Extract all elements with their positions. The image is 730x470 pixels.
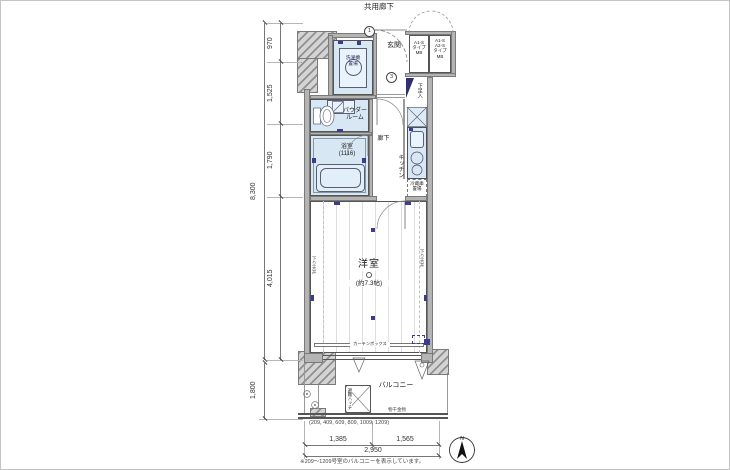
bathtub-inner-icon <box>320 168 361 188</box>
fixture-mark <box>409 128 413 131</box>
wall-segment <box>427 77 433 363</box>
ceiling-light-icon <box>366 272 372 278</box>
toilet-icon <box>313 102 335 130</box>
room-numbers-note: (209, 409, 609, 809, 1009, 1209) <box>309 420 433 426</box>
fixture-mark <box>362 158 366 163</box>
north-label: N <box>457 437 467 443</box>
entrance-step-line <box>377 94 405 95</box>
label-fridge: 冷蔵庫 置場 <box>407 181 427 191</box>
faucet-icon <box>303 390 311 398</box>
hatched-structure <box>297 58 318 93</box>
dim-label-1800: 1,800 <box>250 373 257 407</box>
dim-label-1385: 1,385 <box>321 436 355 443</box>
label-curtain-box: カーテンボックス <box>350 342 390 347</box>
label-mb-right: A1-S A2-S タイプ MB <box>429 38 451 59</box>
wall-segment <box>304 353 323 363</box>
plan-marker-3: 3 <box>386 72 397 83</box>
fixture-mark <box>424 339 430 345</box>
dimension-line <box>264 363 265 419</box>
shoe-box-icon <box>406 78 414 98</box>
drain-icon <box>311 401 319 409</box>
fixture-mark <box>337 129 343 132</box>
fixture-mark <box>312 158 316 163</box>
fixture-mark <box>338 41 343 44</box>
plan-marker-1: 1 <box>364 26 375 37</box>
extension-line <box>439 421 440 459</box>
balcony-rail-line <box>298 417 448 419</box>
fixture-mark <box>311 295 314 301</box>
dim-label-970: 970 <box>267 30 274 56</box>
label-balcony: バルコニー <box>373 382 419 390</box>
label-powder-room: パウダー ルーム <box>339 108 371 122</box>
dimension-line <box>305 456 440 457</box>
room-door-arc-icon <box>377 201 405 229</box>
dim-label-1525: 1,525 <box>267 77 274 109</box>
label-hallway: 廊下 <box>375 136 392 143</box>
fixture-mark <box>405 202 411 205</box>
fixture-mark <box>424 295 427 301</box>
label-common-corridor: 共用廊下 <box>347 3 411 12</box>
fixture-mark <box>371 228 375 232</box>
kitchen-sink-icon <box>410 131 424 148</box>
extension-line <box>267 197 303 198</box>
label-kitchen: キッチン <box>396 144 403 188</box>
stove-burners-icon <box>409 151 425 177</box>
label-mb-left: A1-S タイプ MB <box>409 40 429 56</box>
dim-label-4015: 4,015 <box>267 261 274 295</box>
wall-segment <box>369 135 373 199</box>
label-laundry-hardware: 物干金物 <box>380 407 414 412</box>
partition-line <box>403 99 405 179</box>
dimension-line <box>264 23 265 360</box>
fixture-mark <box>334 202 340 205</box>
balcony-edge-line <box>447 375 448 415</box>
dim-label-1790: 1,790 <box>267 144 274 176</box>
range-hood-icon <box>407 107 427 127</box>
balcony-edge-line <box>304 363 305 415</box>
label-lowered-ceiling-left: 下り天井 <box>312 248 317 282</box>
extension-line <box>267 23 303 24</box>
dimension-line <box>280 23 281 360</box>
mb-door-arc-icon <box>407 5 455 34</box>
fixture-mark <box>371 316 375 320</box>
label-lowered-ceiling-right: 下り天井 <box>420 241 425 275</box>
label-shoe-box: 下足入 <box>416 78 422 102</box>
window-line <box>323 359 421 360</box>
hall-door-arc-icon <box>377 99 403 125</box>
footer-note: ※209〜1209号室のバルコニーを表示しています。 <box>300 459 470 465</box>
dim-label-1565: 1,565 <box>388 436 422 443</box>
dim-label-2950: 2,950 <box>358 447 388 454</box>
entrance-door-arc-icon <box>375 29 408 62</box>
label-main-room-size: (約7.3帖) <box>343 280 395 287</box>
dim-label-8300: 8,300 <box>250 173 257 209</box>
label-escape-hatch: 避難ハッチ <box>347 386 352 412</box>
bath-door-arc-icon <box>347 135 368 156</box>
lowered-ceiling-line <box>323 201 324 353</box>
floor-plan-canvas: 共用廊下 A1-S タイプ MB A1-S A2-S タイプ MB 玄関 1 <box>0 0 730 470</box>
laundry-pole-icon <box>415 361 429 379</box>
entrance-step-line <box>377 97 405 98</box>
laundry-pole-icon <box>353 358 365 372</box>
wall-segment <box>451 31 456 77</box>
balcony-rail-line <box>298 413 448 415</box>
label-main-room: 洋室 <box>351 259 387 271</box>
lowered-ceiling-line <box>419 201 420 353</box>
extension-line <box>267 360 303 361</box>
fixture-mark <box>357 41 361 45</box>
label-washer: 洗濯機 置場 <box>335 56 371 67</box>
extension-line <box>267 124 303 125</box>
extension-line <box>267 62 303 63</box>
window-line <box>323 355 421 356</box>
